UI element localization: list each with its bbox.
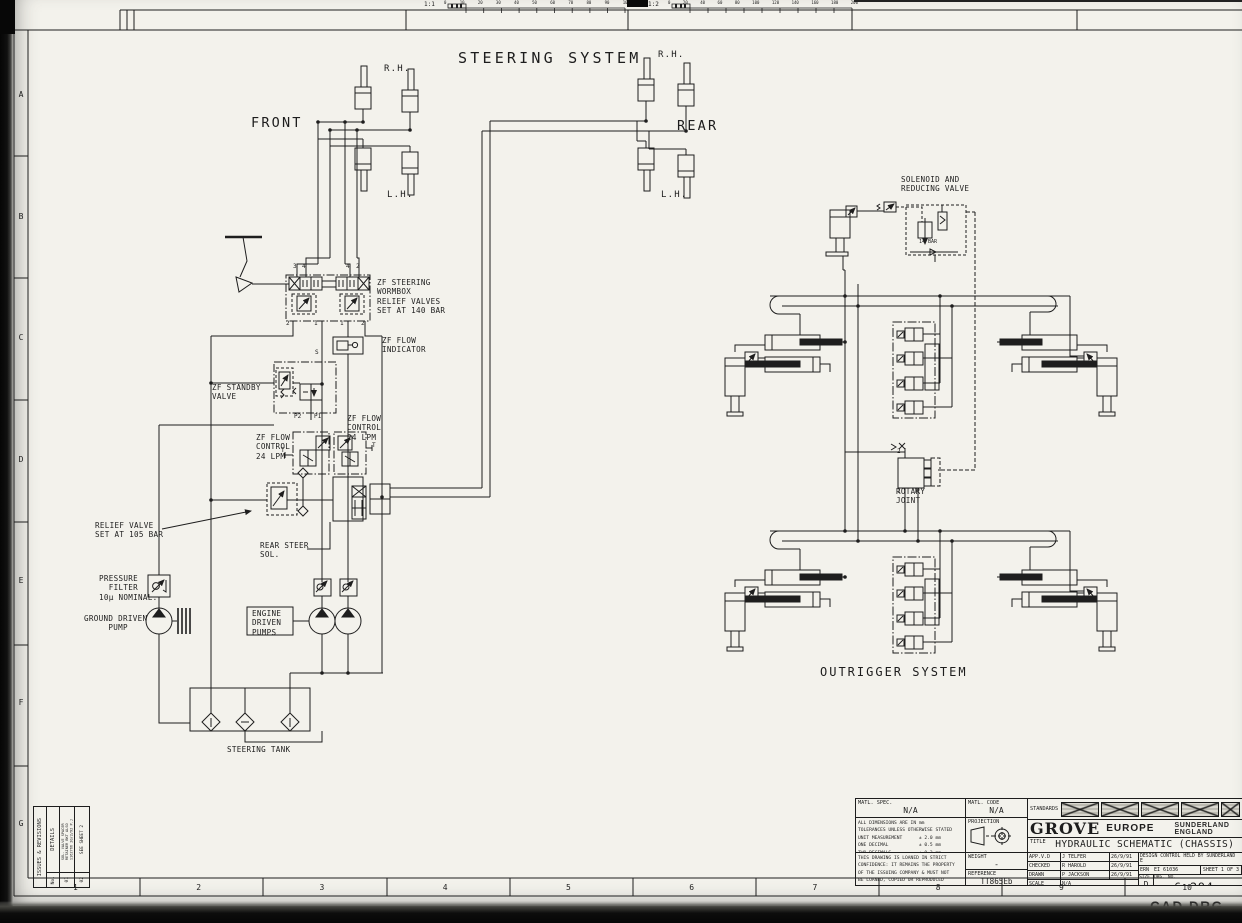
approval-name: J TELFER [1060, 853, 1109, 862]
port-label: 2 [361, 321, 365, 328]
port-label: P2 [294, 414, 301, 421]
matl-code-value: N/A [968, 806, 1025, 815]
confidence-cell: THIS DRAWING IS LOANED IN STRICT CONFIDE… [855, 852, 965, 886]
standards-stamp-icon [1141, 802, 1179, 817]
drawing-title-cell: TITLE HYDRAULIC SCHEMATIC (CHASSIS) [1027, 837, 1242, 852]
rear-steer-label: REAR STEER SOL. [260, 541, 309, 560]
port-label: 3 [293, 264, 297, 271]
company-suffix: EUROPE [1106, 823, 1154, 834]
supply-circuit [146, 336, 383, 723]
solenoid-reducing-valve [826, 202, 975, 270]
ruler1-label: 1:1 [424, 2, 435, 9]
approval-role: APP.V.D [1028, 853, 1060, 862]
rh-rear-label: R.H. [658, 50, 684, 60]
rh-front-label: R.H. [384, 64, 410, 74]
steering-wheel [225, 237, 289, 292]
approval-name: P JACKSON [1060, 871, 1109, 880]
approval-date: 26/9/91 [1109, 871, 1138, 880]
outrigger-group [725, 294, 1117, 418]
drg-no-value: 6-294-991934 [1154, 880, 1242, 886]
front-label: FRONT [251, 116, 303, 131]
outrigger-title: OUTRIGGER SYSTEM [820, 666, 968, 679]
relief-leader-arrow [162, 511, 251, 529]
port-label: 1 [314, 321, 318, 328]
company-logo: GROVE [1030, 821, 1100, 837]
port-label: 2 [286, 321, 290, 328]
ern-value: EI 61036 [1150, 866, 1182, 874]
flow-control-right [334, 354, 372, 582]
wormbox-label: ZF STEERING WORMBOX RELIEF VALVES SET AT… [377, 278, 445, 315]
relief-valve-label: RELIEF VALVE SET AT 105 BAR [95, 521, 163, 540]
lh-rear-label: L.H. [661, 190, 687, 200]
port-label: T [372, 443, 376, 450]
flow-control-left [285, 432, 330, 582]
design-control-note: DESIGN CONTROL HELD BY SUNDERLAND E [1139, 853, 1242, 866]
tolerances-cell: ALL DIMENSIONS ARE IN mm TOLERANCES UNLE… [855, 817, 965, 852]
revision-no: 01 [65, 877, 70, 883]
tolerances-text: ALL DIMENSIONS ARE IN mm TOLERANCES UNLE… [858, 821, 952, 852]
wormbox-valve [211, 258, 382, 356]
port-label: 4 [346, 264, 350, 271]
ern-label: ERN [1139, 866, 1150, 874]
title-block: MATL. SPEC. N/A ALL DIMENSIONS ARE IN mm… [855, 798, 1242, 886]
scan-edge-left [0, 0, 13, 923]
port-label: M [915, 489, 919, 496]
reference-value: TT865Eb [968, 877, 1025, 886]
scan-blob [0, 0, 15, 34]
company-cell: GROVE EUROPE SUNDERLAND ENGLAND [1027, 819, 1242, 837]
port-label: T [281, 448, 285, 455]
weight-cell: WEIGHT - [965, 852, 1027, 869]
schematic-drawing [0, 0, 1242, 923]
flow-indicator-label: ZF FLOW INDICATOR [382, 336, 426, 355]
revision-text: SEE SHEET 2 [80, 825, 85, 854]
sheet-number: SHEET 1 OF 3 [1200, 866, 1242, 874]
junction-dots [209, 119, 920, 675]
revisions-table: ISSUES & REVISIONS DETAILS No. SOL. VALV… [33, 806, 90, 888]
matl-spec-cell: MATL. SPEC. N/A [855, 798, 965, 817]
matl-spec-value: N/A [858, 806, 963, 815]
approval-date: 26/9/91 [1109, 862, 1138, 871]
scale-label: SCALE [1028, 880, 1060, 886]
no-label: No. [51, 876, 56, 884]
standards-stamp-icon [1221, 802, 1240, 817]
port-label: 1 [897, 489, 901, 496]
approval-role: DRAWN [1028, 871, 1060, 880]
steering-tank [190, 688, 322, 742]
confidence-text: THIS DRAWING IS LOANED IN STRICT CONFIDE… [858, 856, 955, 886]
revisions-header-cell: ISSUES & REVISIONS [34, 807, 47, 887]
ground-pump-label: GROUND DRIVEN PUMP [84, 614, 147, 633]
standards-stamp-icon [1101, 802, 1139, 817]
title-label: TITLE [1030, 839, 1046, 845]
revisions-header: ISSUES & REVISIONS [37, 818, 43, 876]
ruler1-ticks: 0102030405060708090100 [444, 0, 630, 5]
standards-cell: STANDARDS [1027, 798, 1242, 819]
zone-letter-column: ABCDEFG [14, 30, 28, 878]
port-label: 4 [302, 264, 306, 271]
matl-code-cell: MATL. CODE N/A [965, 798, 1027, 817]
scan-edge-bottom [0, 901, 1242, 923]
standby-label: ZF STANDBY VALVE [212, 383, 261, 402]
details-label: DETAILS [50, 828, 56, 851]
port-label: P1 [314, 414, 321, 421]
port-label: 2 [897, 449, 901, 456]
drawing-title: HYDRAULIC SCHEMATIC (CHASSIS) [1030, 839, 1240, 850]
rear-cylinders [482, 58, 694, 497]
drg-info-cell: DESIGN CONTROL HELD BY SUNDERLAND E ERN … [1138, 852, 1242, 886]
projection-symbol-icon [968, 825, 1014, 847]
lh-front-label: L.H. [387, 190, 413, 200]
scan-blob [627, 0, 648, 7]
flow-control-right-label: ZF FLOW CONTROL 24 LPM [347, 414, 381, 442]
revision-text: SOL. VALVE SPACER RETAINER BKT ALSO 1162… [61, 819, 74, 860]
engine-pumps-label: ENGINE DRIVEN PUMPS [252, 609, 281, 637]
projection-cell: PROJECTION [965, 817, 1027, 852]
pressure-filter-label: PRESSURE FILTER 10µ NOMINAL. [99, 574, 157, 602]
reducing-pressure-label: 14 BAR [919, 240, 937, 246]
revisions-details-col: DETAILS No. [47, 807, 60, 887]
port-label: 2 [356, 264, 360, 271]
reference-cell: REFERENCE TT865Eb [965, 869, 1027, 886]
cad-scan-sheet: STEERING SYSTEM FRONT REAR R.H. L.H. R.H… [0, 0, 1242, 923]
scan-blob [854, 0, 1242, 2]
rear-label: REAR [677, 119, 718, 134]
revision-no: 02 [80, 877, 85, 883]
company-location: SUNDERLAND ENGLAND [1174, 822, 1240, 836]
scale-value: N/A [1060, 880, 1138, 886]
flow-indicator [333, 337, 363, 354]
revision-row: SEE SHEET 2 02 [75, 807, 90, 887]
standards-label: STANDARDS [1030, 806, 1059, 812]
steering-tank-label: STEERING TANK [227, 745, 290, 754]
solenoid-reducing-label: SOLENOID AND REDUCING VALVE [901, 175, 969, 194]
approval-date: 26/9/91 [1109, 853, 1138, 862]
standards-stamp-icon [1181, 802, 1219, 817]
approvals-table: APP.V.D J TELFER 26/9/91 CHECKED R HAROL… [1027, 852, 1138, 886]
approval-role: CHECKED [1028, 862, 1060, 871]
revision-row: SOL. VALVE SPACER RETAINER BKT ALSO 1162… [60, 807, 75, 887]
ruler2-label: 1:2 [648, 2, 659, 9]
front-cylinders [318, 66, 418, 264]
steering-title: STEERING SYSTEM [458, 50, 641, 67]
standards-stamp-icon [1061, 802, 1099, 817]
weight-value: - [968, 860, 1025, 869]
size-value: D [1139, 880, 1153, 886]
ruler2-ticks: 020406080100120140160180200 [668, 0, 858, 5]
approval-name: R HAROLD [1060, 862, 1109, 871]
port-label: 1 [340, 321, 344, 328]
port-label: S [315, 350, 319, 357]
